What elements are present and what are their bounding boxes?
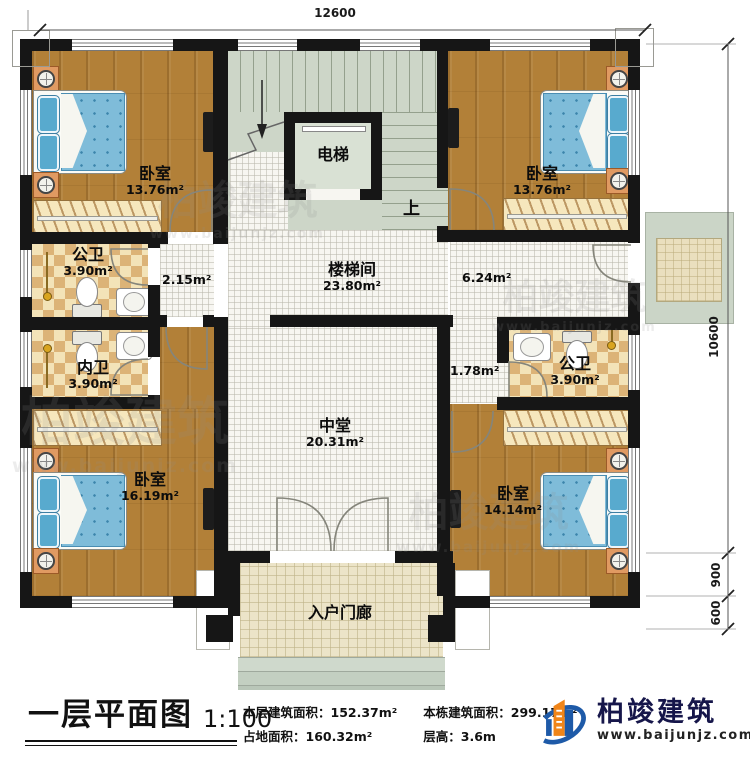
- stat-value: 152.37m²: [331, 705, 398, 720]
- stat-label: 占地面积：: [243, 729, 306, 744]
- room-label-bath-private-left: 内卫 3.90m²: [63, 360, 123, 391]
- room-area: 3.90m²: [63, 377, 123, 391]
- brand-website: www.baijunjz.com: [597, 728, 750, 743]
- watermark-url: www.baijunjz.com: [396, 538, 581, 556]
- dimension-width: 12600: [285, 6, 385, 20]
- stat-floor-area: 本层建筑面积：152.37m²: [243, 702, 397, 721]
- room-label-bedroom-top-right: 卧室 13.76m²: [502, 166, 582, 197]
- watermark: 柏竣建筑 www.baijunjz.com: [492, 268, 657, 335]
- stat-value: 160.32m²: [306, 729, 373, 744]
- room-name: 入户门廊: [280, 605, 400, 622]
- stat-label: 本栋建筑面积：: [423, 705, 511, 720]
- room-name: 公卫: [58, 247, 118, 264]
- room-name: 楼梯间: [308, 262, 396, 279]
- area-corridor-left: 2.15m²: [162, 272, 211, 287]
- room-area: 13.76m²: [115, 183, 195, 197]
- building-blue-small: [546, 719, 552, 736]
- building-blue: [565, 710, 573, 736]
- room-label-bedroom-top-left: 卧室 13.76m²: [115, 166, 195, 197]
- room-name: 公卫: [545, 356, 605, 373]
- stat-value: 3.6m: [461, 729, 496, 744]
- room-area: 20.31m²: [295, 435, 375, 449]
- watermark-url: www.baijunjz.com: [150, 226, 325, 242]
- stair-break-line: [228, 122, 284, 160]
- room-label-bath-public-right: 公卫 3.90m²: [545, 356, 605, 387]
- building-orange: [554, 700, 565, 736]
- brand-name: 柏竣建筑: [597, 699, 750, 727]
- title-underline: [25, 740, 237, 746]
- room-area: 13.76m²: [502, 183, 582, 197]
- room-area: 14.14m²: [473, 503, 553, 517]
- door-arc: [452, 411, 493, 452]
- room-label-entry-porch: 入户门廊: [280, 605, 400, 622]
- dimension-porch-depth: 900: [709, 555, 723, 595]
- watermark-text: 柏竣建筑: [502, 277, 646, 318]
- title-block: 一层平面图 1:100 本层建筑面积：152.37m² 占地面积：160.32m…: [0, 690, 750, 760]
- room-area: 3.90m²: [545, 373, 605, 387]
- watermark-text: 柏竣建筑: [21, 393, 229, 453]
- room-label-elevator: 电梯: [293, 147, 373, 164]
- drawing-title: 一层平面图: [28, 700, 193, 731]
- brand-logo-icon: [533, 690, 589, 752]
- stair-arrow-head-icon: [257, 124, 267, 139]
- stat-label: 本层建筑面积：: [243, 705, 331, 720]
- room-name: 卧室: [110, 472, 190, 489]
- extension-lines-right: [646, 44, 736, 629]
- room-label-stairwell: 楼梯间 23.80m²: [308, 262, 396, 293]
- room-name: 卧室: [115, 166, 195, 183]
- room-name: 卧室: [473, 486, 553, 503]
- room-area: 23.80m²: [308, 279, 396, 293]
- area-corridor-small: 1.78m²: [450, 363, 499, 378]
- dimension-height: 10600: [707, 307, 721, 367]
- door-arc: [166, 327, 207, 369]
- floor-plan: 柏竣建筑 www.baijunjz.com 柏竣建筑 www.baijunjz.…: [0, 0, 750, 690]
- room-name: 内卫: [63, 360, 123, 377]
- door-arc: [509, 362, 547, 397]
- watermark-url: www.baijunjz.com: [492, 320, 657, 335]
- door-arc: [450, 189, 494, 230]
- stat-footprint-area: 占地面积：160.32m²: [243, 726, 397, 745]
- entry-door-left-arc: [277, 498, 331, 551]
- watermark: 柏竣建筑 www.baijunjz.com: [12, 380, 238, 477]
- room-label-bedroom-bottom-right: 卧室 14.14m²: [473, 486, 553, 517]
- brand-text-group: 柏竣建筑 www.baijunjz.com: [597, 699, 750, 742]
- room-label-bedroom-bottom-left: 卧室 16.19m²: [110, 472, 190, 503]
- room-name: 中堂: [295, 418, 375, 435]
- annotation-overlay: [0, 0, 750, 690]
- room-area: 16.19m²: [110, 489, 190, 503]
- area-stats: 本层建筑面积：152.37m² 占地面积：160.32m² 本栋建筑面积：299…: [243, 702, 578, 750]
- room-area: 3.90m²: [58, 264, 118, 278]
- area-corridor-right: 6.24m²: [462, 270, 511, 285]
- stairs-up-label: 上: [403, 194, 420, 219]
- room-label-bath-public-left: 公卫 3.90m²: [58, 247, 118, 278]
- brand-logo: 柏竣建筑 www.baijunjz.com: [533, 690, 750, 752]
- dimension-steps-depth: 600: [709, 593, 723, 633]
- entry-door-right-arc: [334, 498, 388, 551]
- room-name: 电梯: [293, 147, 373, 164]
- drawing-title-group: 一层平面图 1:100: [28, 700, 272, 731]
- room-name: 卧室: [502, 166, 582, 183]
- stats-column-1: 本层建筑面积：152.37m² 占地面积：160.32m²: [243, 702, 397, 750]
- room-label-central-hall: 中堂 20.31m²: [295, 418, 375, 449]
- stat-label: 层高：: [423, 729, 461, 744]
